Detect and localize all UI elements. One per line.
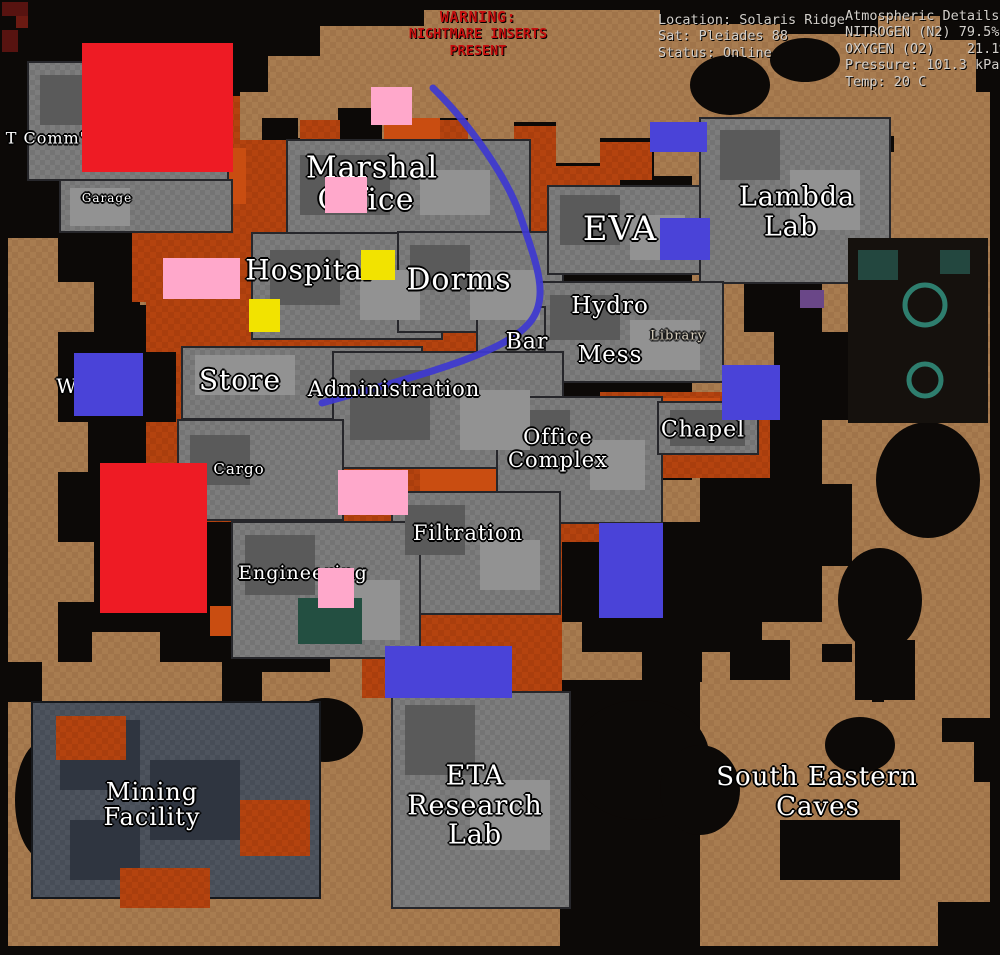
annotation-rect-pink	[371, 87, 412, 125]
annotation-rect-yellow	[249, 299, 280, 332]
annotation-rect-yellow	[361, 250, 395, 280]
annotation-rect-blue	[650, 122, 707, 152]
warning-line-2: NIGHTMARE INSERTS	[409, 26, 547, 42]
warning-banner: WARNING:NIGHTMARE INSERTSPRESENT	[409, 8, 547, 59]
location-line-1: Location: Solaris Ridge	[658, 12, 845, 28]
atmosphere-line-1: Atmospheric Details:	[845, 8, 1000, 24]
annotation-rect-blue	[599, 523, 663, 618]
colony-map-screenshot: T Comm'sGarageMarshalOfficeHospitalDorms…	[0, 0, 1000, 955]
annotation-rect-blue	[385, 646, 512, 698]
location-status-panel: Location: Solaris RidgeSat: Pleiades 88S…	[658, 12, 845, 61]
atmosphere-line-4: Pressure: 101.3 kPa	[845, 57, 1000, 73]
annotation-rect-pink	[318, 568, 354, 608]
annotation-rect-blue	[660, 218, 710, 260]
annotation-rect-pink	[338, 470, 408, 515]
atmosphere-line-5: Temp: 20 C	[845, 74, 1000, 90]
atmospheric-panel: Atmospheric Details:NITROGEN (N2) 79.5%O…	[845, 8, 1000, 90]
annotation-rect-red	[100, 463, 207, 613]
annotation-rect-pink	[325, 177, 367, 213]
annotation-rect-blue	[74, 353, 143, 416]
atmosphere-line-3: OXYGEN (O2) 21.1%	[845, 41, 1000, 57]
location-line-3: Status: Online	[658, 45, 845, 61]
warning-line-1: WARNING:	[409, 8, 547, 26]
annotation-rect-blue	[722, 365, 780, 420]
warning-line-3: PRESENT	[409, 43, 547, 59]
atmosphere-line-2: NITROGEN (N2) 79.5%	[845, 24, 1000, 40]
location-line-2: Sat: Pleiades 88	[658, 28, 845, 44]
annotation-rects	[0, 0, 1000, 955]
annotation-rect-red	[82, 43, 233, 172]
annotation-rect-pink	[163, 258, 240, 299]
